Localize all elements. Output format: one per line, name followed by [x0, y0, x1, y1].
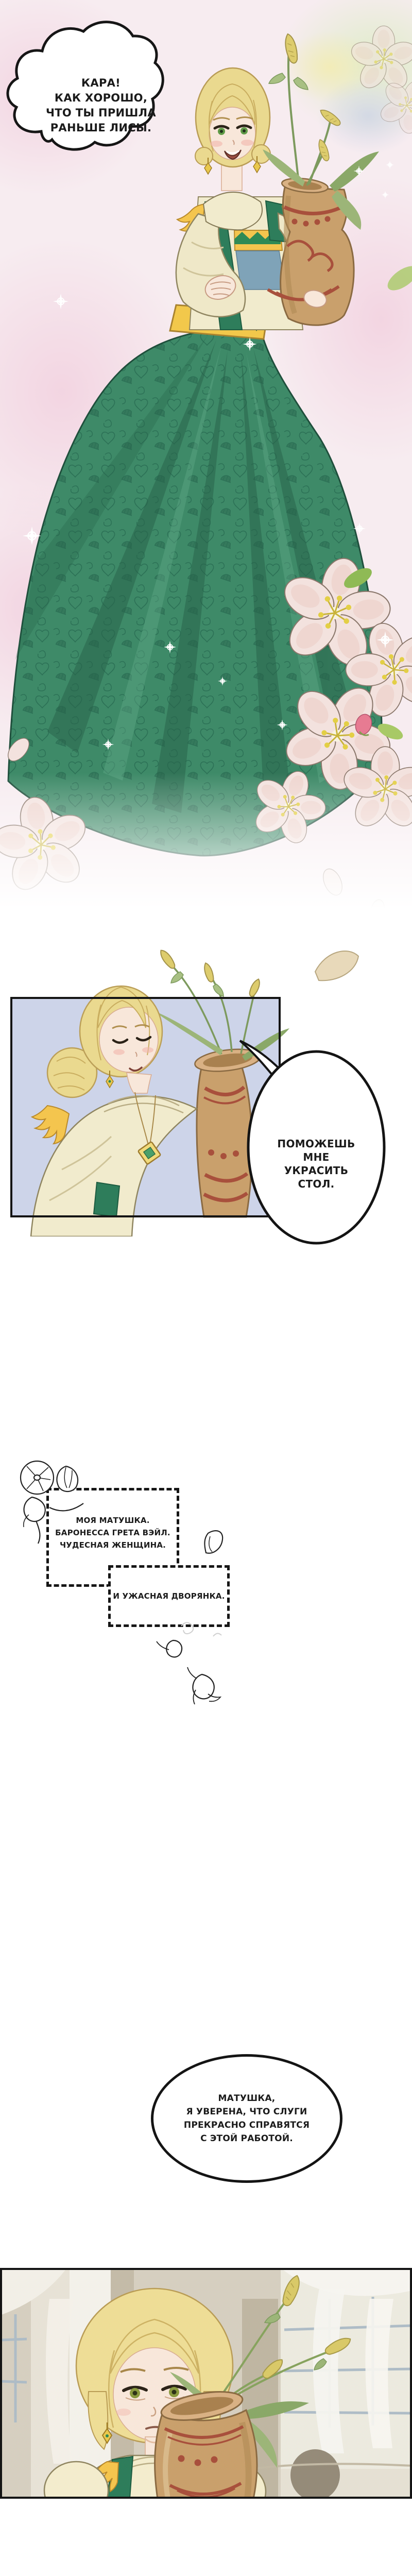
speech-line: ПРЕКРАСНО СПРАВЯТСЯ — [184, 2119, 310, 2132]
speech-line: РАНЬШЕ ЛИСЫ. — [50, 121, 152, 135]
speech-line: СТОЛ. — [298, 1177, 334, 1191]
speech-line: МАТУШКА, — [218, 2092, 276, 2105]
panel-kara-serious-art — [0, 2268, 412, 2499]
speech-line: ПОМОЖЕШЬ — [277, 1137, 355, 1150]
speech-line: ЧТО ТЫ ПРИШЛА — [46, 106, 156, 121]
speech-line: КАРА! — [81, 76, 121, 91]
speech-text-servants: МАТУШКА, Я УВЕРЕНА, ЧТО СЛУГИ ПРЕКРАСНО … — [159, 2066, 335, 2171]
speech-text-decorate: ПОМОЖЕШЬ МНЕ УКРАСИТЬ СТОЛ. — [262, 1131, 370, 1196]
speech-text-kara-greeting: КАРА! КАК ХОРОШО, ЧТО ТЫ ПРИШЛА РАНЬШЕ Л… — [32, 67, 170, 144]
speech-line: КАК ХОРОШО, — [55, 91, 147, 106]
speech-line: Я УВЕРЕНА, ЧТО СЛУГИ — [186, 2105, 307, 2119]
webtoon-page: КАРА! КАК ХОРОШО, ЧТО ТЫ ПРИШЛА РАНЬШЕ Л… — [0, 0, 412, 2576]
closeup-woman — [31, 986, 197, 1236]
panel-kara-serious — [0, 2268, 412, 2499]
speech-line: УКРАСИТЬ — [284, 1164, 349, 1177]
speech-line: С ЭТОЙ РАБОТОЙ. — [200, 2132, 293, 2145]
ink-flower-sketches — [0, 1448, 257, 1721]
speech-line: МНЕ — [303, 1150, 329, 1164]
